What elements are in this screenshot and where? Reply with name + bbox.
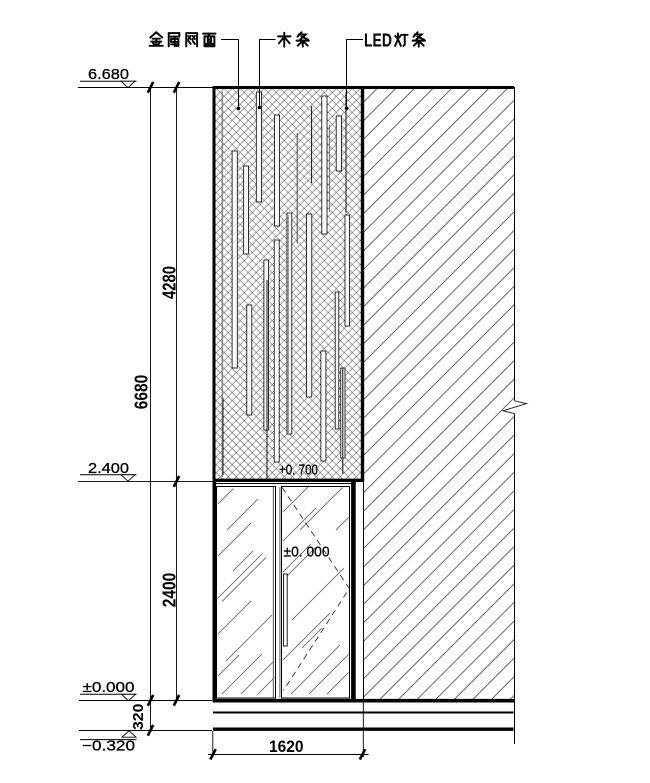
svg-text:6680: 6680 bbox=[132, 375, 152, 410]
svg-text:320: 320 bbox=[130, 704, 147, 731]
svg-text:1620: 1620 bbox=[269, 738, 304, 756]
svg-text:±0. 000: ±0. 000 bbox=[284, 544, 330, 561]
svg-text:+0. 700: +0. 700 bbox=[279, 462, 318, 479]
svg-text:LED: LED bbox=[364, 31, 392, 51]
svg-text:−0.320: −0.320 bbox=[82, 738, 135, 755]
svg-text:6.680: 6.680 bbox=[88, 66, 129, 83]
svg-text:4280: 4280 bbox=[160, 266, 180, 299]
svg-text:2400: 2400 bbox=[160, 573, 180, 608]
svg-text:±0.000: ±0.000 bbox=[83, 679, 135, 696]
